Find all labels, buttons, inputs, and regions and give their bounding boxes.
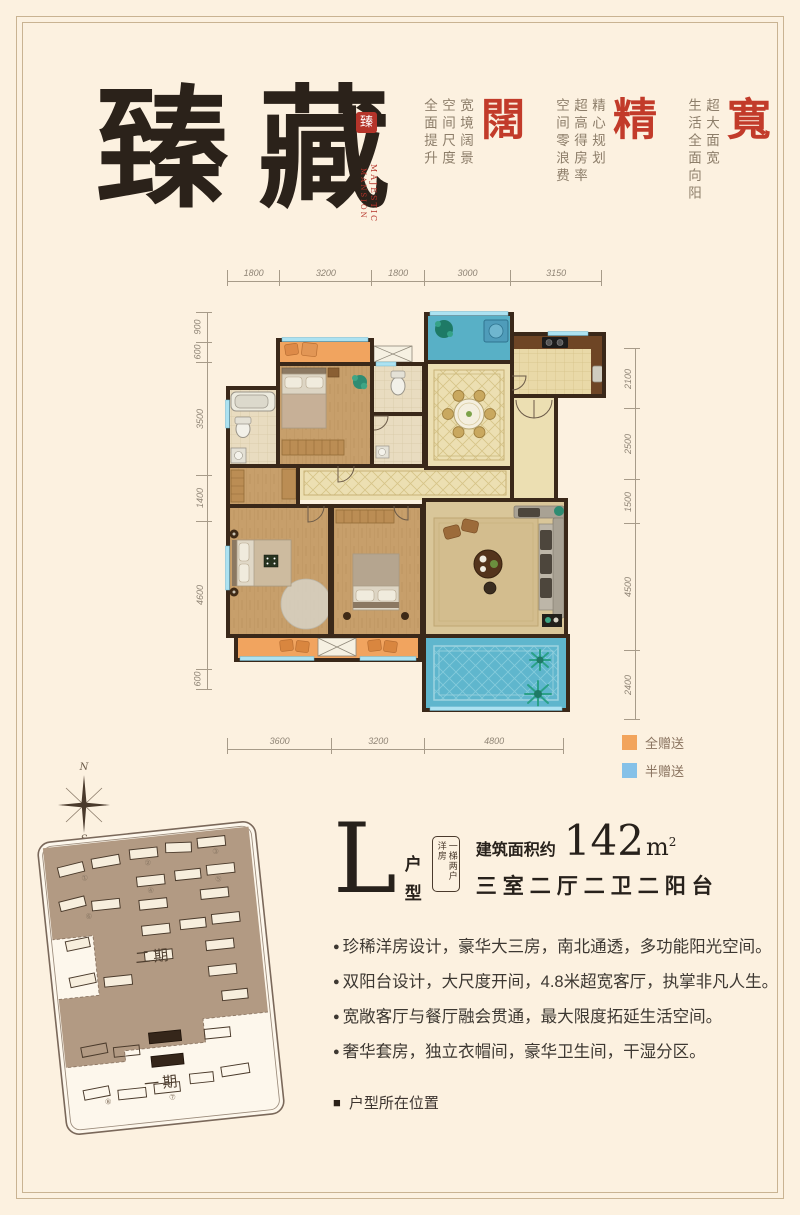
master-bed-icon (232, 540, 291, 586)
feature-col: 生活全面向阳 (684, 98, 702, 306)
dim-label: 3000 (425, 268, 510, 278)
compass-n-label: N (79, 762, 90, 773)
dim-label: 2500 (623, 434, 633, 454)
phase2-label: 二期 (134, 946, 172, 968)
area-value: 142 (564, 820, 644, 862)
toilet-icon (235, 417, 251, 438)
dim-label: 2100 (623, 369, 633, 389)
dim-label: 4800 (425, 736, 563, 746)
bullet-item: ● 珍稀洋房设计，豪华大三房，南北通透，多功能阳光空间。 (333, 930, 783, 965)
area-prefix: 建筑面积约 (476, 836, 556, 860)
dim-label: 3600 (228, 736, 331, 746)
dim-label: 4500 (623, 577, 633, 597)
dim-label: 1400 (195, 488, 205, 508)
legend-label: 半赠送 (645, 761, 684, 780)
seal-text-mansion: MANSION (359, 168, 367, 220)
unit-type-char: 户 (405, 850, 422, 875)
location-label: 户型所在位置 (349, 1092, 439, 1113)
dim-label: 3200 (280, 268, 371, 278)
building-marker: ⑧ (104, 1097, 112, 1107)
unit-header: L 户 型 一梯两户洋房 建筑面积约 142 m2 三室二厅二卫二阳台 (333, 820, 783, 904)
legend-swatch-blue (622, 763, 637, 778)
unit-letter: L (333, 820, 397, 899)
dim-label: 1800 (228, 268, 279, 278)
location-square-icon: ■ (333, 1095, 341, 1110)
legend-full-gift: 全赠送 (622, 733, 684, 752)
dim-bottom: 3600 3200 4800 (227, 738, 564, 754)
feature-group-kuan: 寬 超大面宽 生活全面向阳 (684, 96, 768, 306)
unit-area: 建筑面积约 142 m2 (476, 820, 719, 862)
dim-label: 600 (193, 672, 203, 687)
dim-label: 600 (193, 345, 203, 360)
unit-stamp: 一梯两户洋房 (432, 836, 460, 892)
dim-right: 2100 2500 1500 4500 2400 (624, 348, 640, 720)
dim-label: 3150 (511, 268, 601, 278)
bathtub-icon (231, 392, 275, 411)
compass-icon: N S (52, 758, 116, 844)
dim-top: 1800 3200 1800 3000 3150 (227, 270, 602, 286)
seal-text-majestic: MAJESTIC (369, 164, 378, 223)
building-marker: ① (81, 873, 89, 883)
unit-type-label: 户 型 (405, 850, 422, 904)
bullet-text: 奢华套房，独立衣帽间，豪华卫生间，干湿分区。 (343, 1035, 706, 1070)
title-char-zhen: 臻 (96, 84, 228, 216)
seal-stamp-icon: 臻 (356, 112, 377, 133)
building-marker: ⑥ (85, 911, 93, 921)
plan-legend: 全赠送 半赠送 (622, 733, 684, 789)
bed3-icon (353, 554, 399, 610)
bullet-text: 双阳台设计，大尺度开间，4.8米超宽客厅，执掌非凡人生。 (343, 965, 778, 1000)
building-marker: ⑤ (215, 874, 223, 884)
building-marker: ④ (147, 886, 155, 896)
legend-swatch-orange (622, 735, 637, 750)
phase1-label: 一期 (143, 1072, 181, 1094)
bullet-item: ● 双阳台设计，大尺度开间，4.8米超宽客厅，执掌非凡人生。 (333, 965, 783, 1000)
bullet-icon: ● (333, 1000, 340, 1035)
legend-half-gift: 半赠送 (622, 761, 684, 780)
unit-location-note: ■ 户型所在位置 (333, 1092, 783, 1113)
dim-label: 1500 (623, 492, 633, 512)
feature-col: 超大面宽 (702, 98, 720, 306)
floorplan-svg (222, 308, 612, 728)
dim-left: 900 600 3500 1400 4600 600 (196, 312, 212, 690)
feature-big-char: 寬 (720, 96, 768, 306)
bullet-icon: ● (333, 965, 340, 1000)
building-marker: ③ (212, 846, 220, 856)
seal-brand-text: MAJESTIC MANSION (358, 139, 378, 249)
legend-label: 全赠送 (645, 733, 684, 752)
dim-label: 3200 (332, 736, 424, 746)
unit-type-char: 型 (405, 879, 422, 904)
brand-seal: 臻 MAJESTIC MANSION (356, 112, 380, 249)
bed-icon (282, 368, 326, 428)
dim-label: 3500 (195, 409, 205, 429)
dim-label: 4600 (195, 585, 205, 605)
page-title: 臻 藏 (96, 84, 390, 216)
unit-bullets: ● 珍稀洋房设计，豪华大三房，南北通透，多功能阳光空间。 ● 双阳台设计，大尺度… (333, 930, 783, 1070)
bullet-text: 宽敞客厅与餐厅融会贯通，最大限度拓延生活空间。 (343, 1000, 723, 1035)
bullet-icon: ● (333, 930, 340, 965)
unit-layout: 三室二厅二卫二阳台 (476, 870, 719, 900)
bullet-item: ● 奢华套房，独立衣帽间，豪华卫生间，干湿分区。 (333, 1035, 783, 1070)
bullet-text: 珍稀洋房设计，豪华大三房，南北通透，多功能阳光空间。 (343, 930, 772, 965)
unit-info: L 户 型 一梯两户洋房 建筑面积约 142 m2 三室二厅二卫二阳台 ● 珍稀… (333, 820, 783, 1113)
bullet-item: ● 宽敞客厅与餐厅融会贯通，最大限度拓延生活空间。 (333, 1000, 783, 1035)
dim-label: 900 (193, 320, 203, 335)
building-marker: ⑦ (169, 1092, 177, 1102)
bullet-icon: ● (333, 1035, 340, 1070)
coffee-table-icon (474, 550, 502, 578)
feature-big-char: 精 (606, 96, 654, 306)
area-unit: m2 (646, 833, 676, 861)
unit-details: 建筑面积约 142 m2 三室二厅二卫二阳台 (476, 820, 719, 900)
dim-label: 1800 (372, 268, 423, 278)
siteplan-svg: ① ② ③ ④ ⑤ ⑥ ⑦ ⑧ 二期 一期 (31, 817, 291, 1139)
dim-label: 2400 (623, 675, 633, 695)
building-marker: ② (144, 858, 152, 868)
